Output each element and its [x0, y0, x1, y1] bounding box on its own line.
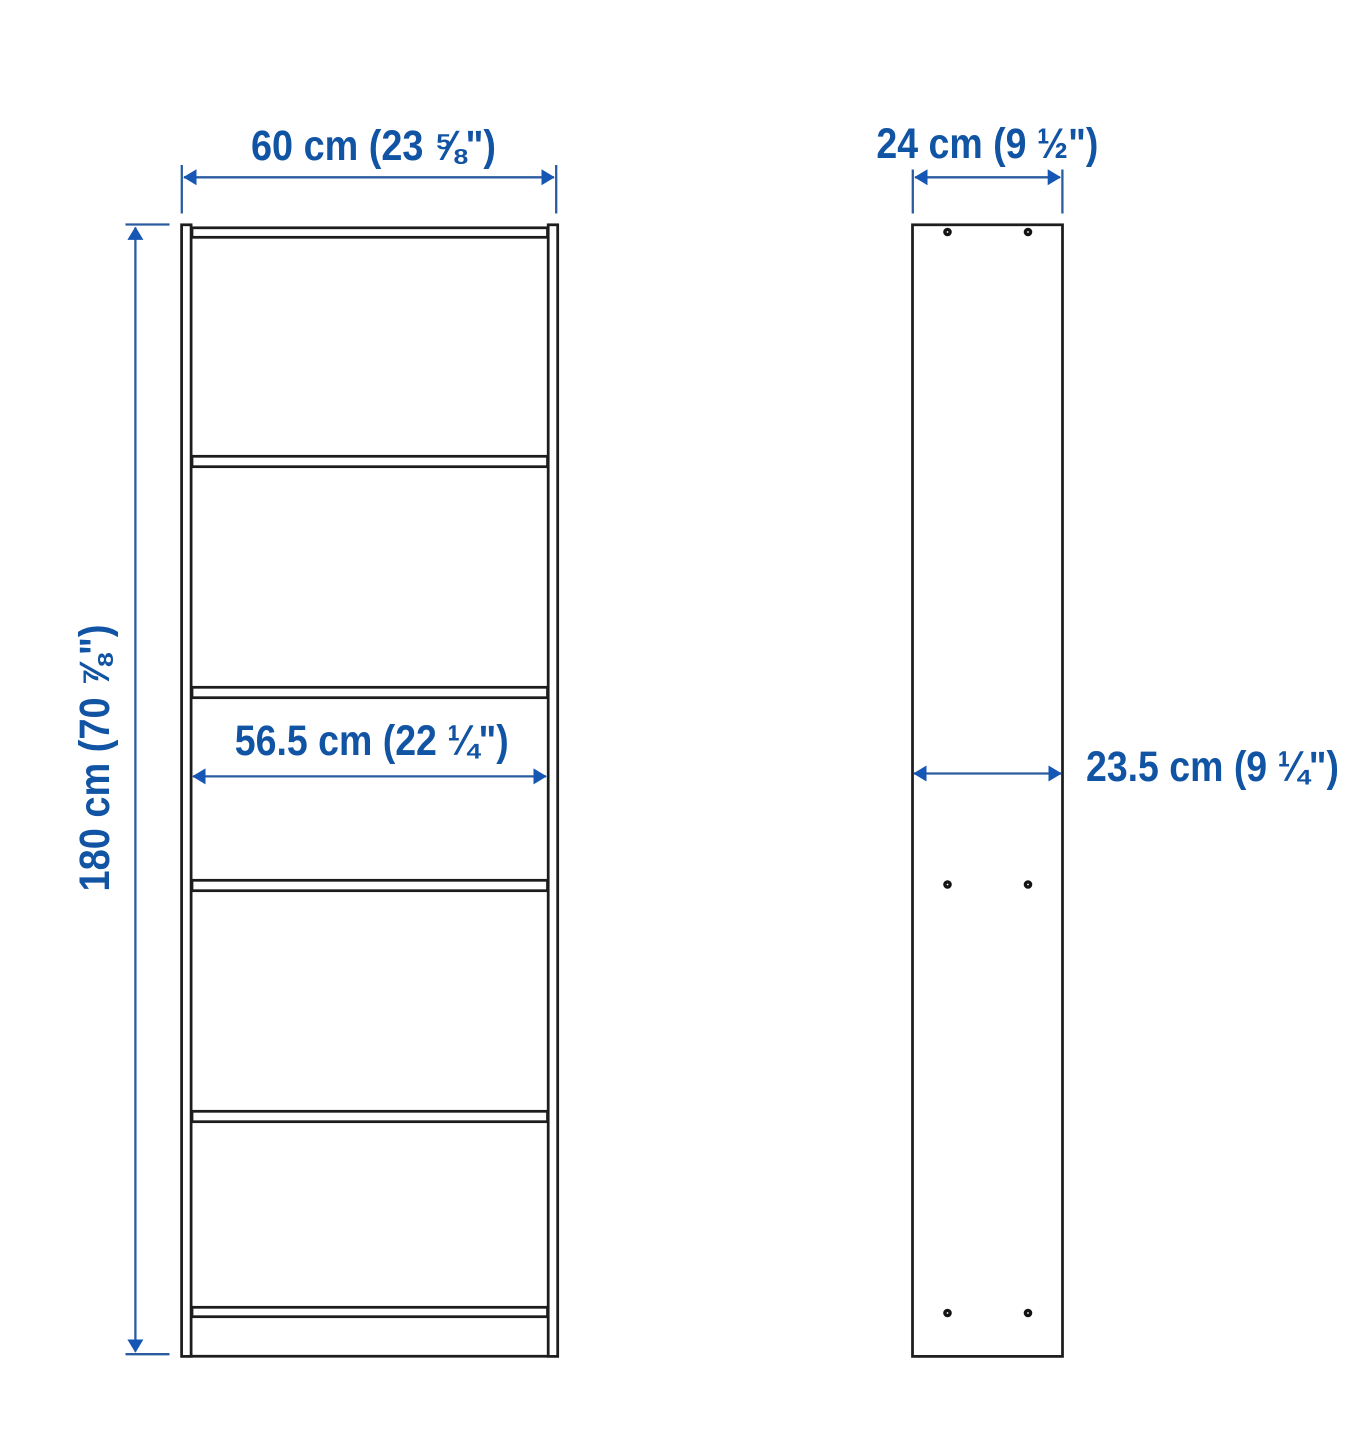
- svg-text:56.5 cm (22 ¼"): 56.5 cm (22 ¼"): [235, 717, 509, 765]
- svg-text:60 cm (23 ⅝"): 60 cm (23 ⅝"): [251, 122, 496, 170]
- svg-text:24 cm (9 ½"): 24 cm (9 ½"): [876, 120, 1098, 168]
- svg-text:23.5 cm (9 ¼"): 23.5 cm (9 ¼"): [1086, 743, 1339, 791]
- svg-text:180 cm (70 ⅞"): 180 cm (70 ⅞"): [71, 625, 119, 892]
